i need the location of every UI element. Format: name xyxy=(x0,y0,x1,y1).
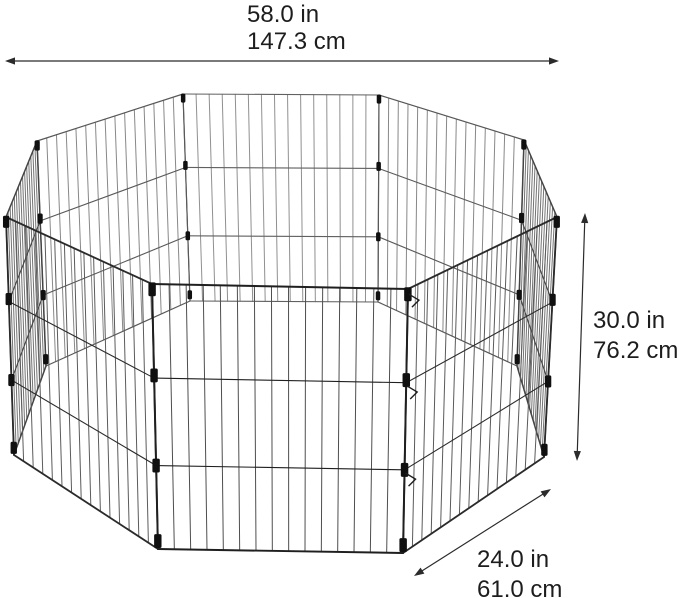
pen-panel xyxy=(183,94,379,302)
panel-connector-clip xyxy=(148,282,155,296)
panel-connector-clip xyxy=(376,232,381,241)
product-dimension-diagram: 58.0 in 147.3 cm 30.0 in 76.2 cm 24.0 in… xyxy=(0,0,679,598)
panel-connector-clip xyxy=(188,290,193,299)
panel-connector-clip xyxy=(183,161,188,170)
panel-connector-clip xyxy=(519,213,524,223)
panel-connector-clip xyxy=(11,442,17,454)
panel-connector-clip xyxy=(515,354,520,364)
height-inches-text: 30.0 in xyxy=(593,306,678,336)
width-centimeters-text: 147.3 cm xyxy=(247,28,346,55)
arrowhead xyxy=(541,489,551,497)
pen-panel xyxy=(378,95,524,366)
panel-connector-clip xyxy=(377,95,382,104)
panel-connector-clip xyxy=(186,231,191,240)
panel-connector-clip xyxy=(403,373,410,387)
panel-width-dimension-label: 24.0 in 61.0 cm xyxy=(477,545,562,598)
pen-group xyxy=(3,94,560,553)
pen-illustration xyxy=(0,0,679,598)
panel-connector-clip xyxy=(150,369,157,383)
width-dimension-label: 58.0 in 147.3 cm xyxy=(247,1,346,55)
panel-width-centimeters-text: 61.0 cm xyxy=(477,575,562,598)
panel-connector-clip xyxy=(38,214,43,224)
height-dimension-label: 30.0 in 76.2 cm xyxy=(593,306,678,366)
panel-connector-clip xyxy=(154,534,161,548)
arrowhead xyxy=(574,451,581,461)
panel-connector-clip xyxy=(545,375,551,387)
pen-panel xyxy=(152,284,408,553)
panel-connector-clip xyxy=(6,293,12,305)
arrowhead xyxy=(581,213,588,223)
arrowhead xyxy=(549,57,559,64)
panel-connector-clip xyxy=(376,162,381,171)
width-dimension-arrow xyxy=(5,57,559,64)
width-inches-text: 58.0 in xyxy=(247,1,346,28)
panel-connector-clip xyxy=(521,139,526,149)
panel-connector-clip xyxy=(541,444,547,456)
arrowhead xyxy=(5,57,15,64)
pen-panel xyxy=(403,217,557,553)
panel-connector-clip xyxy=(549,294,555,306)
height-dimension-arrow xyxy=(574,213,589,461)
panel-connector-clip xyxy=(404,287,411,301)
arrowhead xyxy=(414,568,424,576)
panel-connector-clip xyxy=(41,290,46,300)
panel-width-inches-text: 24.0 in xyxy=(477,545,562,575)
pen-panel xyxy=(37,94,190,366)
panel-connector-clip xyxy=(181,94,186,103)
panel-connector-clip xyxy=(376,291,381,300)
panel-connector-clip xyxy=(3,216,9,228)
panel-connector-clip xyxy=(43,354,48,364)
panel-connector-clip xyxy=(35,140,40,150)
panel-connector-clip xyxy=(517,290,522,300)
height-centimeters-text: 76.2 cm xyxy=(593,336,678,366)
pen-panel xyxy=(6,217,158,549)
panel-connector-clip xyxy=(399,538,406,552)
panel-connector-clip xyxy=(152,459,159,473)
panel-connector-clip xyxy=(554,216,560,228)
panel-connector-clip xyxy=(8,374,14,386)
